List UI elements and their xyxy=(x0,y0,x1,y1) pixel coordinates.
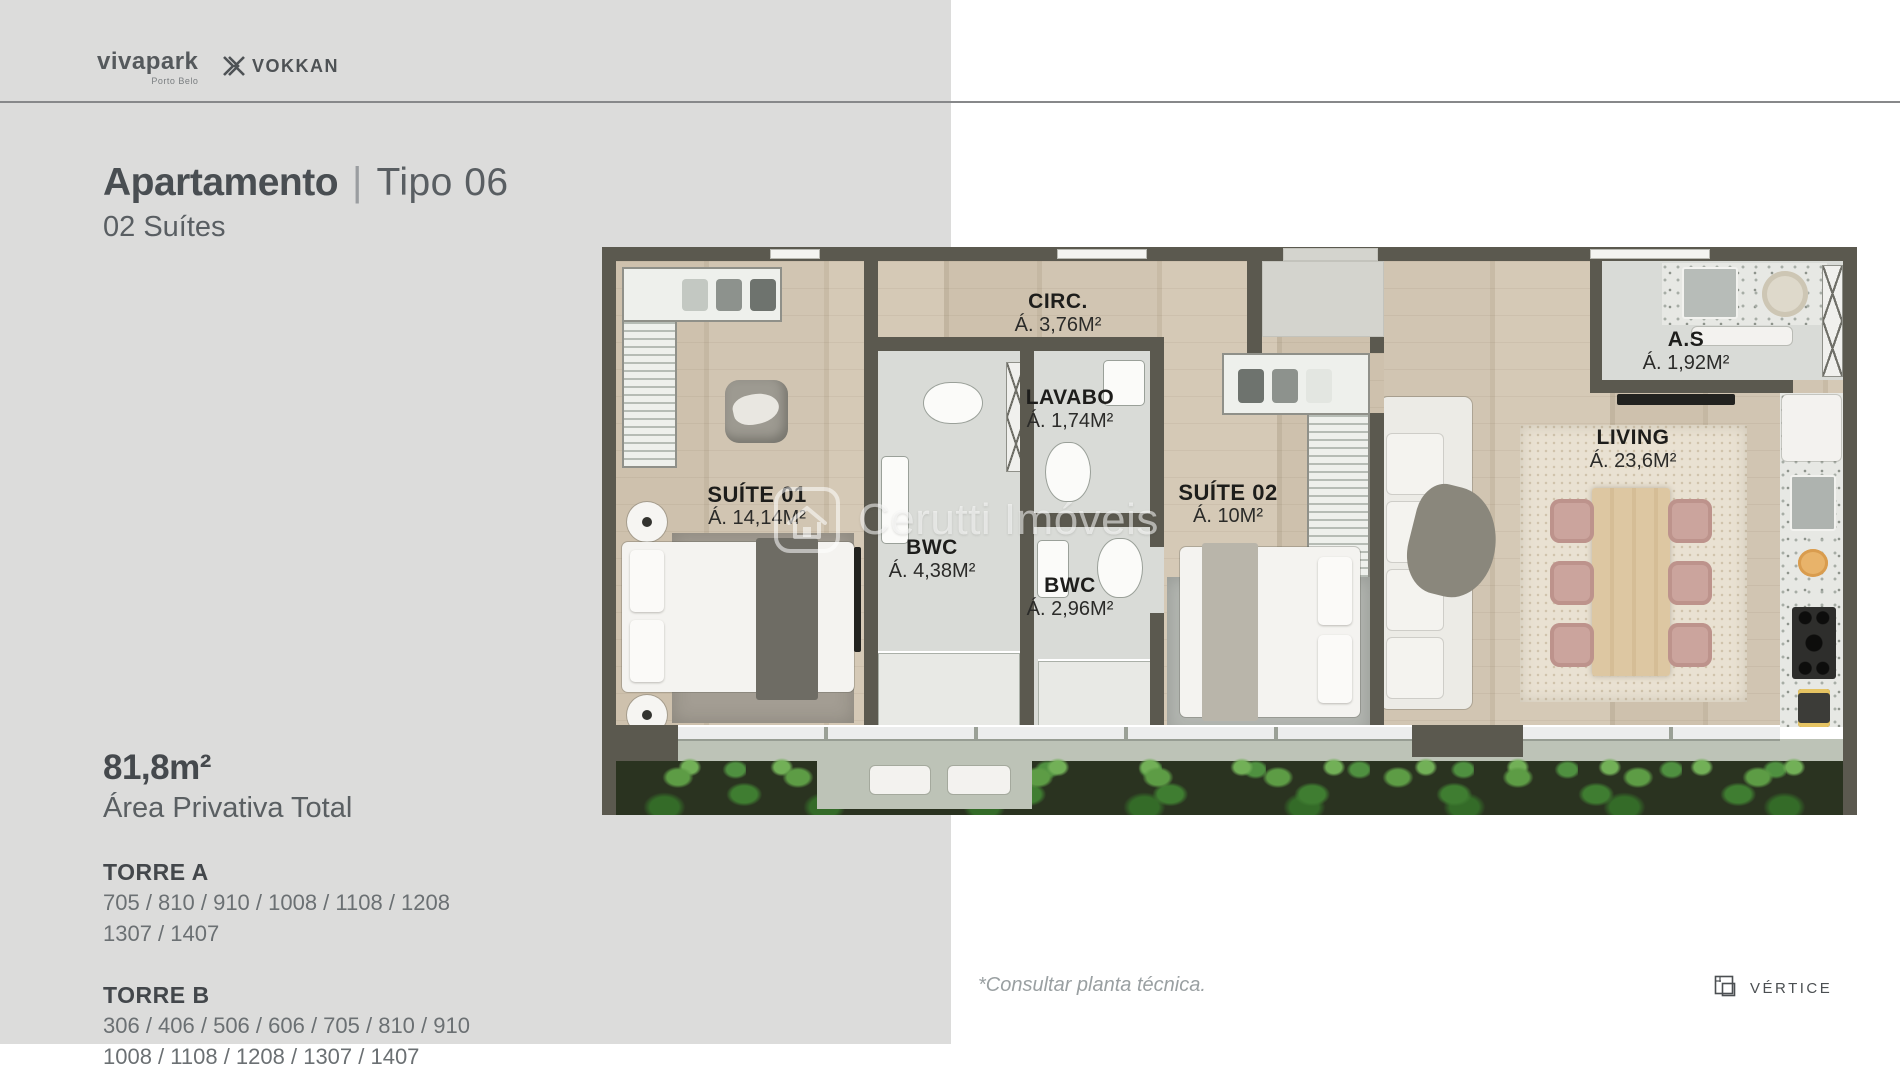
dining-chair xyxy=(1668,561,1712,605)
tower-a-units-line1: 705 / 810 / 910 / 1008 / 1108 / 1208 xyxy=(103,889,470,917)
dining-chair xyxy=(1550,561,1594,605)
vertice-square-icon xyxy=(1714,975,1741,1002)
window xyxy=(770,249,820,259)
room-area: Á. 1,74M² xyxy=(1026,411,1115,433)
toaster xyxy=(1798,689,1830,727)
vokkan-logo-text: VOKKAN xyxy=(252,56,339,77)
footnote: *Consultar planta técnica. xyxy=(978,974,1206,997)
bed-pillow xyxy=(1318,557,1352,625)
balcony-parapet xyxy=(616,725,678,761)
unit-type: Tipo 06 xyxy=(376,161,508,205)
room-label-circ: CIRC. Á. 3,76M² xyxy=(1015,291,1102,336)
suite02-closet-shelf xyxy=(1222,353,1370,415)
tower-b-units-line2: 1008 / 1108 / 1208 / 1307 / 1407 xyxy=(103,1043,470,1071)
dining-table xyxy=(1592,488,1670,676)
page-title: Apartamento xyxy=(103,161,338,205)
vivapark-logo-subtext: Porto Belo xyxy=(151,76,198,86)
title-block: Apartamento | Tipo 06 02 Suítes xyxy=(103,160,509,244)
suite01-side-table xyxy=(627,502,667,542)
tower-b-name: TORRE B xyxy=(103,982,470,1009)
room-area: Á. 3,76M² xyxy=(1015,315,1102,337)
service-tank-sink xyxy=(1682,267,1738,319)
balcony-parapet xyxy=(1412,725,1523,757)
watermark: Cerutti Imóveis xyxy=(772,485,1159,555)
entry-door xyxy=(1283,248,1378,261)
room-name: LAVABO xyxy=(1026,387,1115,410)
details-block: 81,8m² Área Privativa Total TORRE A 705 … xyxy=(103,748,470,1072)
bed-throw-blanket xyxy=(756,538,818,700)
bed-throw-blanket xyxy=(1202,543,1258,721)
entry-foyer-floor xyxy=(1262,261,1384,337)
suite01-ottoman xyxy=(725,380,788,443)
wall-segment xyxy=(1590,380,1793,393)
kitchen-sink xyxy=(1790,475,1836,531)
refrigerator xyxy=(1782,395,1841,461)
bed-pillow xyxy=(1318,635,1352,703)
wall-segment xyxy=(1590,261,1602,393)
room-area: Á. 4,38M² xyxy=(889,561,976,583)
vokkan-logo: VOKKAN xyxy=(222,55,339,77)
door-opening xyxy=(1370,353,1384,413)
room-area: Á. 10M² xyxy=(1178,506,1277,528)
bed-pillow xyxy=(630,620,664,682)
window xyxy=(1590,249,1710,259)
suite01-tv xyxy=(854,547,861,652)
tower-b-units-line1: 306 / 406 / 506 / 606 / 705 / 810 / 910 xyxy=(103,1012,470,1040)
outer-wall-left xyxy=(602,247,616,815)
window xyxy=(1057,249,1147,259)
bwc1-toilet xyxy=(924,383,982,423)
private-area-label: Área Privativa Total xyxy=(103,792,470,825)
room-label-living: LIVING Á. 23,6M² xyxy=(1590,427,1677,472)
living-sofa xyxy=(1380,397,1472,709)
tower-b-block: TORRE B 306 / 406 / 506 / 606 / 705 / 81… xyxy=(103,982,470,1071)
suite01-bed xyxy=(622,542,854,692)
pantry-cabinet xyxy=(1822,265,1843,377)
vokkan-x-icon xyxy=(222,55,246,77)
wall-segment xyxy=(878,337,1162,351)
vivapark-logo: vivapark Porto Belo xyxy=(97,50,198,86)
room-name: CIRC. xyxy=(1015,291,1102,314)
cooktop-stove xyxy=(1792,607,1836,679)
room-area: Á. 2,96M² xyxy=(1027,599,1114,621)
room-area: Á. 23,6M² xyxy=(1590,451,1677,473)
room-area: Á. 1,92M² xyxy=(1643,353,1730,375)
food-plate xyxy=(1798,549,1828,577)
suite01-closet-hanging xyxy=(622,320,677,468)
vivapark-logo-text: vivapark xyxy=(97,50,198,74)
header-bar: vivapark Porto Belo VOKKAN xyxy=(0,0,1900,103)
folded-clothes xyxy=(1306,369,1332,403)
folded-clothes xyxy=(1272,369,1298,403)
room-name: BWC xyxy=(1027,575,1114,598)
folded-clothes xyxy=(750,279,776,311)
room-label-suite02: SUÍTE 02 Á. 10M² xyxy=(1178,481,1277,527)
title-separator: | xyxy=(352,160,362,205)
private-area-value: 81,8m² xyxy=(103,748,470,788)
room-label-lavabo: LAVABO Á. 1,74M² xyxy=(1026,387,1115,432)
vertice-logo: VÉRTICE xyxy=(1714,975,1832,1002)
balcony-bench xyxy=(948,766,1010,794)
tower-a-units-line2: 1307 / 1407 xyxy=(103,920,470,948)
outer-wall-right xyxy=(1843,247,1857,815)
balcony-window-band xyxy=(678,725,1412,741)
tower-a-block: TORRE A 705 / 810 / 910 / 1008 / 1108 / … xyxy=(103,859,470,948)
room-name: A.S xyxy=(1643,329,1730,352)
dining-chair xyxy=(1550,623,1594,667)
folded-clothes xyxy=(1238,369,1264,403)
floor-plan: CIRC. Á. 3,76M² LAVABO Á. 1,74M² A.S Á. … xyxy=(602,247,1857,815)
tv-console xyxy=(1617,394,1735,405)
balcony-bench xyxy=(870,766,930,794)
room-name: LIVING xyxy=(1590,427,1677,450)
room-label-bwc2: BWC Á. 2,96M² xyxy=(1027,575,1114,620)
dining-chair xyxy=(1668,499,1712,543)
door-opening xyxy=(1150,547,1164,613)
tower-a-name: TORRE A xyxy=(103,859,470,886)
suite01-closet-shelf xyxy=(622,267,782,322)
living-sliding-door xyxy=(1523,725,1780,741)
folded-clothes xyxy=(716,279,742,311)
folded-clothes xyxy=(682,279,708,311)
vertice-logo-text: VÉRTICE xyxy=(1750,980,1832,997)
dining-chair xyxy=(1668,623,1712,667)
sofa-cushion xyxy=(1386,637,1444,699)
laundry-basket xyxy=(1762,271,1808,317)
room-name: SUÍTE 02 xyxy=(1178,481,1277,505)
dining-chair xyxy=(1550,499,1594,543)
bed-pillow xyxy=(630,550,664,612)
wall-segment xyxy=(1247,261,1262,353)
watermark-text: Cerutti Imóveis xyxy=(858,495,1159,545)
suite02-bed xyxy=(1180,547,1360,717)
title-subtitle: 02 Suítes xyxy=(103,211,509,244)
watermark-house-icon xyxy=(772,485,842,555)
room-label-as: A.S Á. 1,92M² xyxy=(1643,329,1730,374)
